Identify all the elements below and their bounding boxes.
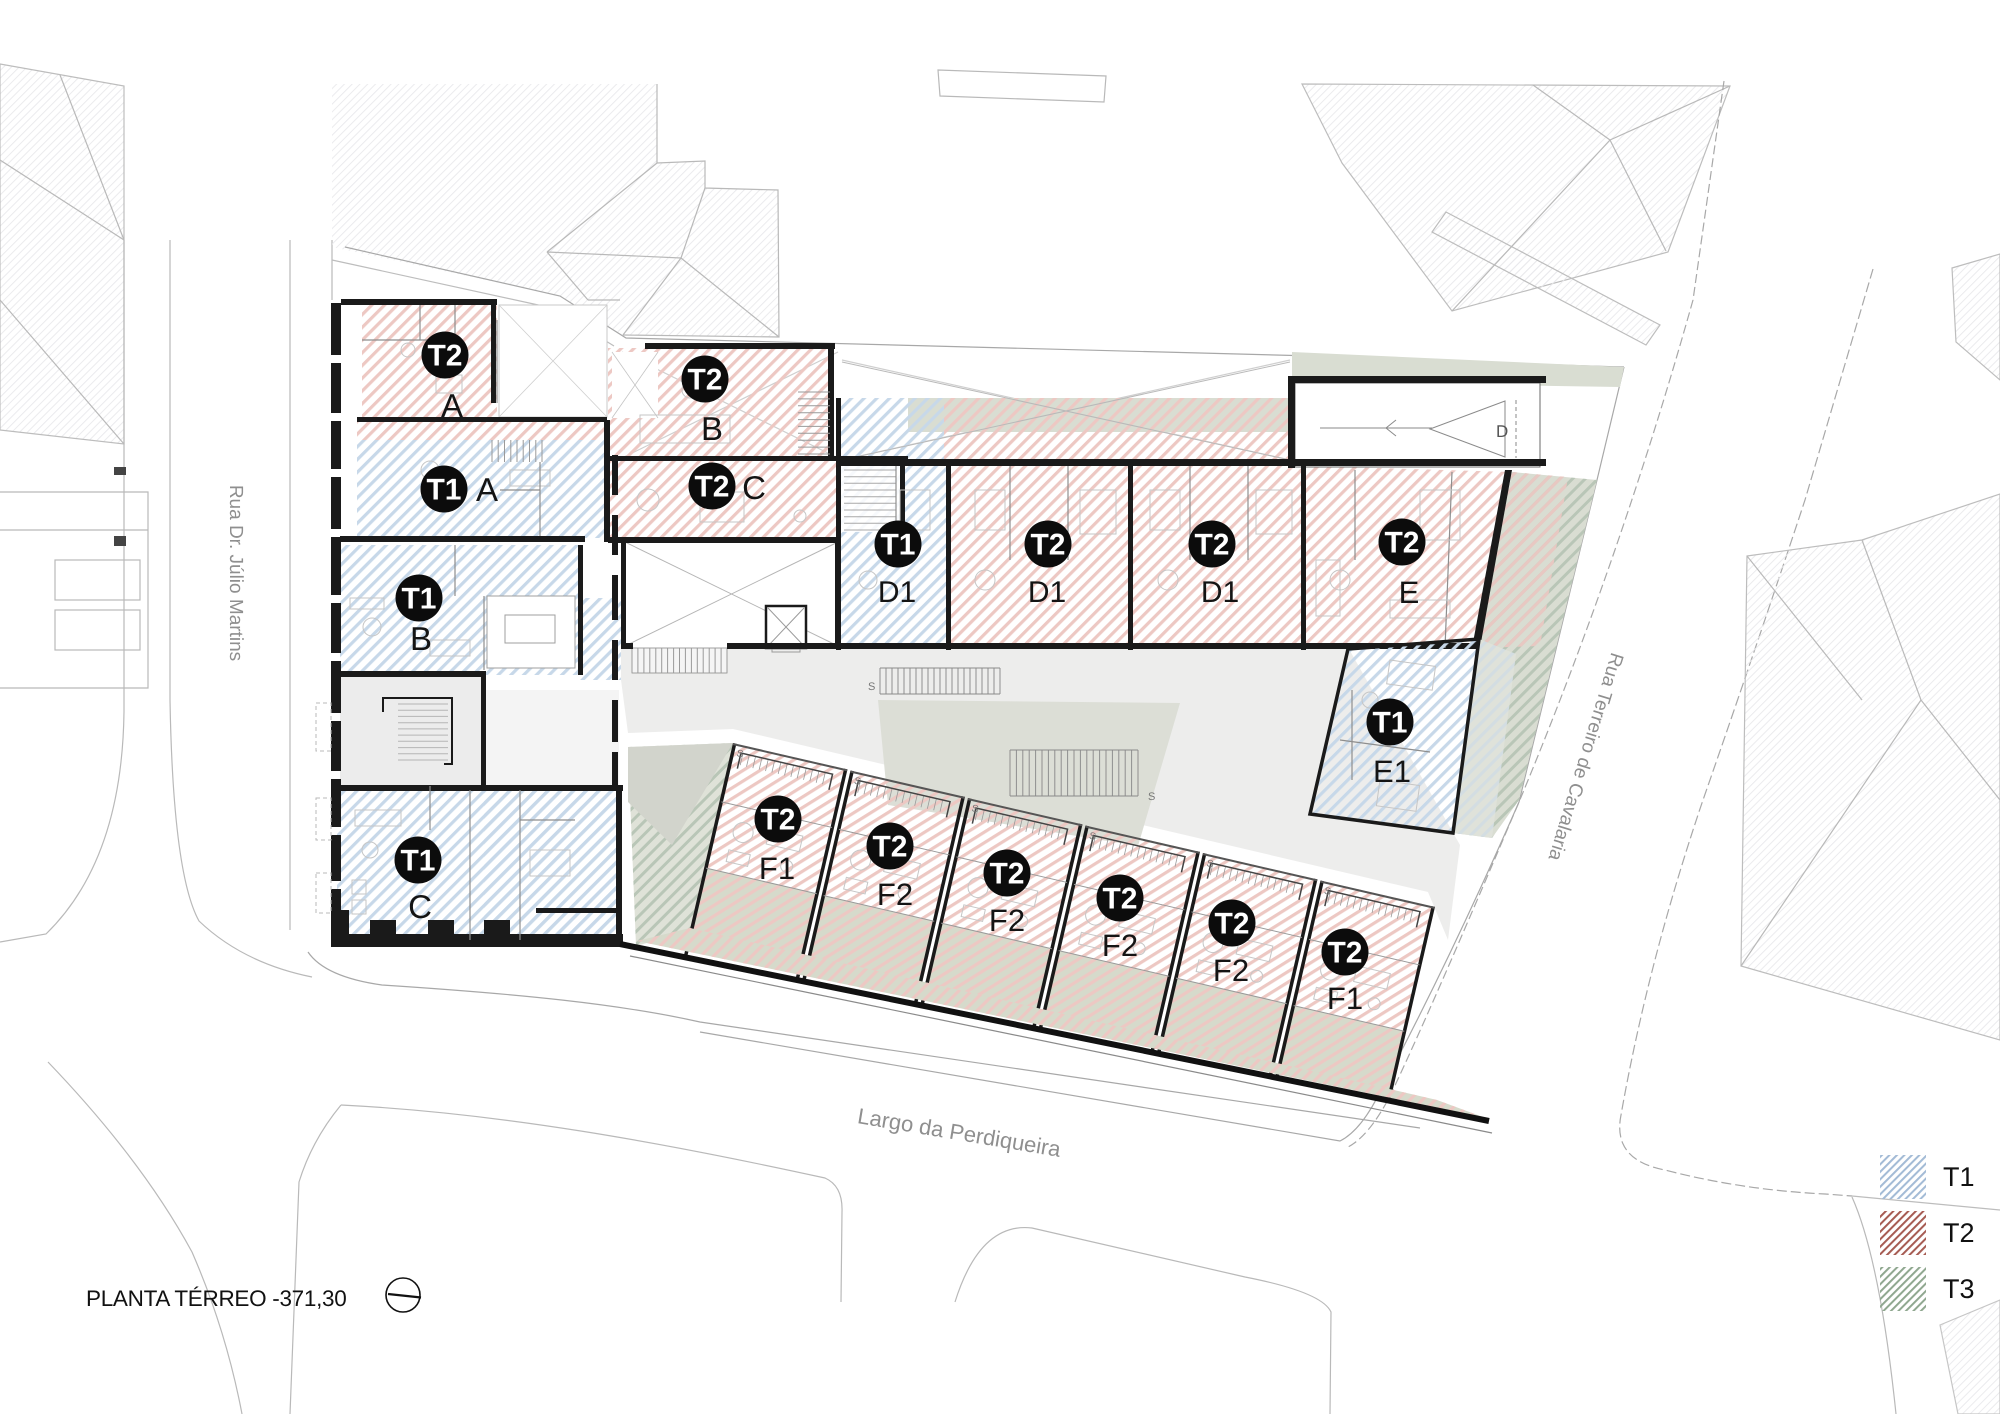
svg-text:T1: T1 [1943,1162,1975,1192]
svg-text:T1: T1 [401,583,436,616]
svg-text:D1: D1 [1028,576,1066,609]
svg-text:T2: T2 [1327,937,1362,970]
svg-text:T2: T2 [1102,883,1137,916]
svg-text:T2: T2 [1943,1218,1975,1248]
svg-text:T2: T2 [1030,529,1065,562]
svg-text:T3: T3 [1943,1274,1975,1304]
svg-text:T2: T2 [872,831,907,864]
svg-text:D1: D1 [1201,576,1239,609]
svg-text:B: B [410,620,432,657]
svg-text:S: S [868,681,875,693]
svg-text:D1: D1 [878,576,916,609]
svg-text:T2: T2 [1214,908,1249,941]
svg-text:T2: T2 [989,858,1024,891]
svg-text:F2: F2 [877,877,913,912]
svg-text:T1: T1 [880,529,915,562]
svg-text:T2: T2 [1194,529,1229,562]
svg-text:E: E [1399,575,1420,610]
svg-text:F2: F2 [1102,928,1138,963]
svg-text:D: D [1496,422,1508,441]
svg-text:B: B [701,410,723,447]
svg-text:F1: F1 [1327,981,1363,1016]
svg-text:PLANTA TÉRREO -371,30: PLANTA TÉRREO -371,30 [86,1286,346,1311]
svg-text:C: C [408,888,432,925]
svg-text:T2: T2 [427,340,462,373]
svg-text:T2: T2 [1384,527,1419,560]
svg-text:T2: T2 [760,804,795,837]
svg-text:F2: F2 [1213,953,1249,988]
svg-text:E1: E1 [1373,754,1411,789]
svg-text:Rua Dr. Júlio Martins: Rua Dr. Júlio Martins [225,485,246,661]
svg-text:T1: T1 [1372,707,1407,740]
svg-text:F2: F2 [989,903,1025,938]
svg-text:S: S [1148,791,1155,803]
svg-text:T1: T1 [426,474,461,507]
svg-text:C: C [742,469,766,506]
svg-text:T1: T1 [400,845,435,878]
svg-text:T2: T2 [694,471,729,504]
svg-text:A: A [476,471,498,508]
svg-text:T2: T2 [687,364,722,397]
svg-text:F1: F1 [759,851,795,886]
svg-text:A: A [441,387,463,424]
